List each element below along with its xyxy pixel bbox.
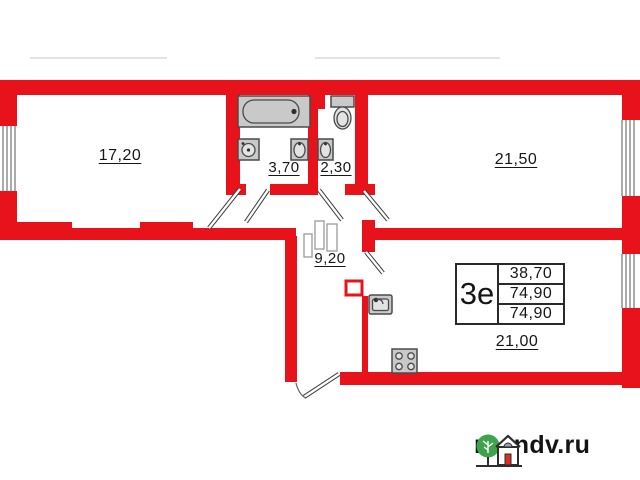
toilet-area-label: 2,30 xyxy=(314,159,358,176)
bathroom-area-label: 3,70 xyxy=(262,159,306,176)
right-wall-middle xyxy=(622,196,640,254)
kitchen-partition-wall xyxy=(362,296,368,374)
bath-sink-icon xyxy=(291,139,308,160)
toilet-sink-icon xyxy=(318,139,333,160)
floor-plan-drawing xyxy=(0,0,640,480)
divider-top-stub xyxy=(314,95,325,109)
door-bathroom xyxy=(246,190,268,222)
washing-machine-icon xyxy=(238,139,259,160)
door-toilet xyxy=(319,190,342,220)
top-exterior-wall xyxy=(0,80,640,95)
floor-plan: 17,20 3,70 2,30 21,50 9,20 21,00 3е 38,7… xyxy=(0,0,640,480)
apartment-type-label: 3е xyxy=(457,265,499,323)
full-area-value: 74,90 xyxy=(499,305,563,323)
hallway-left-wall xyxy=(285,236,297,382)
kitchen-area-label: 21,00 xyxy=(491,333,543,350)
right-wall-upper xyxy=(622,95,640,120)
apartment-areas-column: 38,70 74,90 74,90 xyxy=(499,265,563,323)
toilet-icon xyxy=(331,96,354,129)
vent-shaft xyxy=(346,281,362,295)
room1-area-label: 17,20 xyxy=(93,147,147,164)
kitchen-sink-icon xyxy=(369,295,392,314)
kitchen-bottom-wall xyxy=(340,372,622,385)
room1-bottom-wall-pier-right xyxy=(140,222,193,230)
house-window xyxy=(504,443,512,447)
watermark-logo: rosndv.ru xyxy=(474,431,590,460)
stove-icon xyxy=(392,349,417,373)
door-room1 xyxy=(209,189,240,228)
door-kitchen xyxy=(366,252,383,273)
door-room2 xyxy=(364,191,388,220)
right-wall-lower xyxy=(622,308,640,388)
house-tree-icon xyxy=(474,431,524,469)
window-room1-left xyxy=(3,126,15,191)
room1-bottom-wall-pier-left xyxy=(17,222,72,230)
house-door xyxy=(505,454,511,465)
window-room2-right xyxy=(622,120,634,196)
window-kitchen-right xyxy=(622,254,634,308)
door-entrance xyxy=(296,374,339,398)
apartment-info-table: 3е 38,70 74,90 74,90 xyxy=(455,263,565,325)
total-area-value: 74,90 xyxy=(499,285,563,305)
left-wall-upper xyxy=(0,95,17,126)
bathroom-bottom-wall-mid xyxy=(270,184,318,195)
room2-area-label: 21,50 xyxy=(489,151,543,168)
room2-left-wall xyxy=(355,95,368,191)
bathtub-icon xyxy=(238,96,310,127)
hallway-area-label: 9,20 xyxy=(310,250,350,267)
room2-bottom-wall xyxy=(362,228,622,240)
living-area-value: 38,70 xyxy=(499,265,563,285)
